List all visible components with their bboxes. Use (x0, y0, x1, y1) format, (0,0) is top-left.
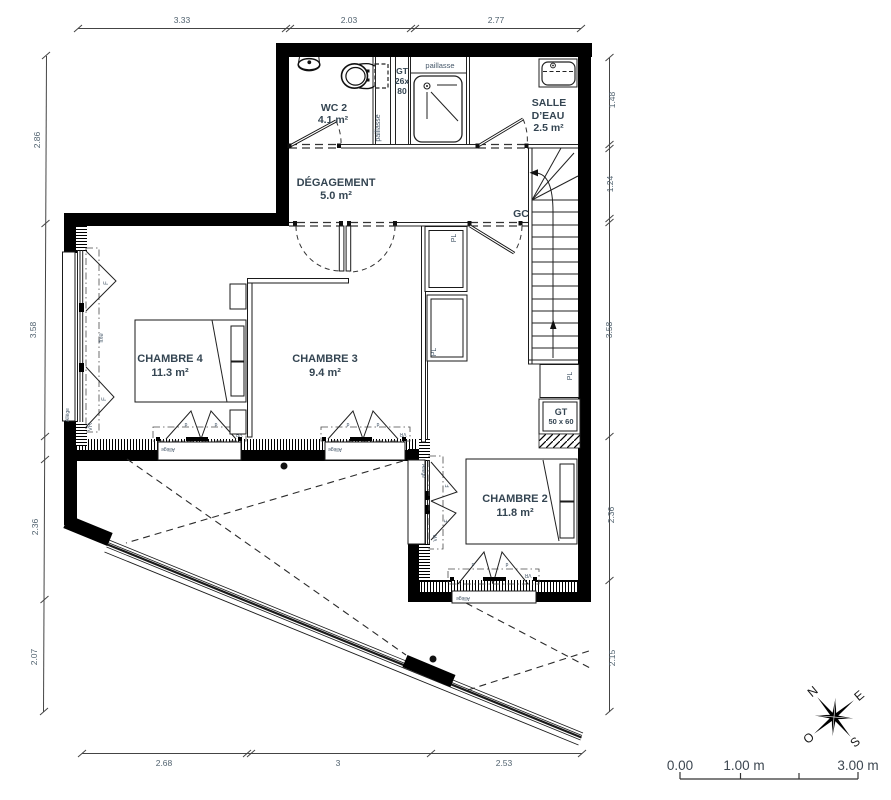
svg-text:D’EAU: D’EAU (532, 110, 565, 122)
svg-text:VR: VR (399, 431, 406, 437)
svg-text:Allège: Allège (456, 595, 470, 601)
svg-text:GT: GT (555, 407, 568, 417)
svg-text:fixe: fixe (99, 333, 105, 343)
svg-text:F: F (102, 397, 108, 401)
svg-text:d: d (505, 561, 508, 567)
svg-text:CHAMBRE 2: CHAMBRE 2 (482, 493, 547, 505)
svg-text:VR: VR (524, 572, 531, 578)
svg-text:1.00 m: 1.00 m (723, 758, 764, 773)
svg-text:2.86: 2.86 (32, 131, 42, 148)
svg-text:F: F (104, 281, 110, 285)
svg-text:paillasse: paillasse (375, 114, 382, 141)
svg-text:2.15: 2.15 (607, 649, 617, 666)
svg-text:11.3 m²: 11.3 m² (151, 367, 189, 379)
svg-text:CHAMBRE 4: CHAMBRE 4 (137, 353, 203, 365)
svg-text:paillasse: paillasse (425, 61, 454, 70)
svg-text:GC: GC (513, 208, 529, 220)
svg-text:1.48: 1.48 (607, 91, 617, 108)
svg-text:2.53: 2.53 (496, 758, 513, 768)
svg-text:3.58: 3.58 (604, 321, 614, 338)
svg-text:5.0 m²: 5.0 m² (320, 190, 352, 202)
svg-text:2.68: 2.68 (156, 758, 173, 768)
svg-text:2.03: 2.03 (341, 15, 358, 25)
svg-text:d: d (214, 421, 217, 427)
svg-text:3.58: 3.58 (28, 321, 38, 338)
svg-text:VR: VR (88, 422, 94, 431)
svg-text:0.00: 0.00 (667, 758, 693, 773)
svg-text:3.00 m: 3.00 m (837, 758, 878, 773)
svg-text:4.1 m²: 4.1 m² (318, 114, 349, 126)
svg-text:F: F (445, 484, 451, 487)
svg-text:2.07: 2.07 (29, 648, 39, 665)
svg-text:DÉGAGEMENT: DÉGAGEMENT (297, 176, 376, 189)
svg-text:d: d (471, 561, 474, 567)
svg-text:PL: PL (567, 372, 574, 381)
svg-text:Allège: Allège (65, 408, 71, 422)
svg-text:80: 80 (397, 86, 407, 96)
svg-text:PL: PL (431, 348, 438, 357)
svg-text:d: d (376, 421, 379, 427)
svg-text:d: d (346, 421, 349, 427)
svg-text:CHAMBRE 3: CHAMBRE 3 (292, 353, 357, 365)
svg-text:F: F (444, 519, 450, 522)
svg-text:SALLE: SALLE (532, 97, 566, 109)
svg-text:1.24: 1.24 (605, 175, 615, 192)
svg-text:VR: VR (433, 534, 439, 541)
svg-text:9.4 m²: 9.4 m² (309, 367, 341, 379)
svg-text:GT: GT (396, 66, 409, 76)
svg-text:2.36: 2.36 (606, 506, 616, 523)
svg-text:26x: 26x (395, 76, 409, 86)
svg-text:2.77: 2.77 (488, 15, 505, 25)
svg-text:3: 3 (336, 758, 341, 768)
svg-text:WC 2: WC 2 (321, 102, 347, 114)
svg-text:50 x 60: 50 x 60 (548, 417, 573, 426)
svg-text:2.5 m²: 2.5 m² (533, 122, 564, 134)
svg-text:d: d (184, 421, 187, 427)
svg-text:3.33: 3.33 (174, 15, 191, 25)
svg-text:2.36: 2.36 (30, 518, 40, 535)
svg-text:Allège: Allège (328, 446, 342, 452)
svg-text:11.8 m²: 11.8 m² (496, 507, 534, 519)
svg-text:PL: PL (451, 234, 458, 243)
svg-text:Allège: Allège (161, 446, 175, 452)
